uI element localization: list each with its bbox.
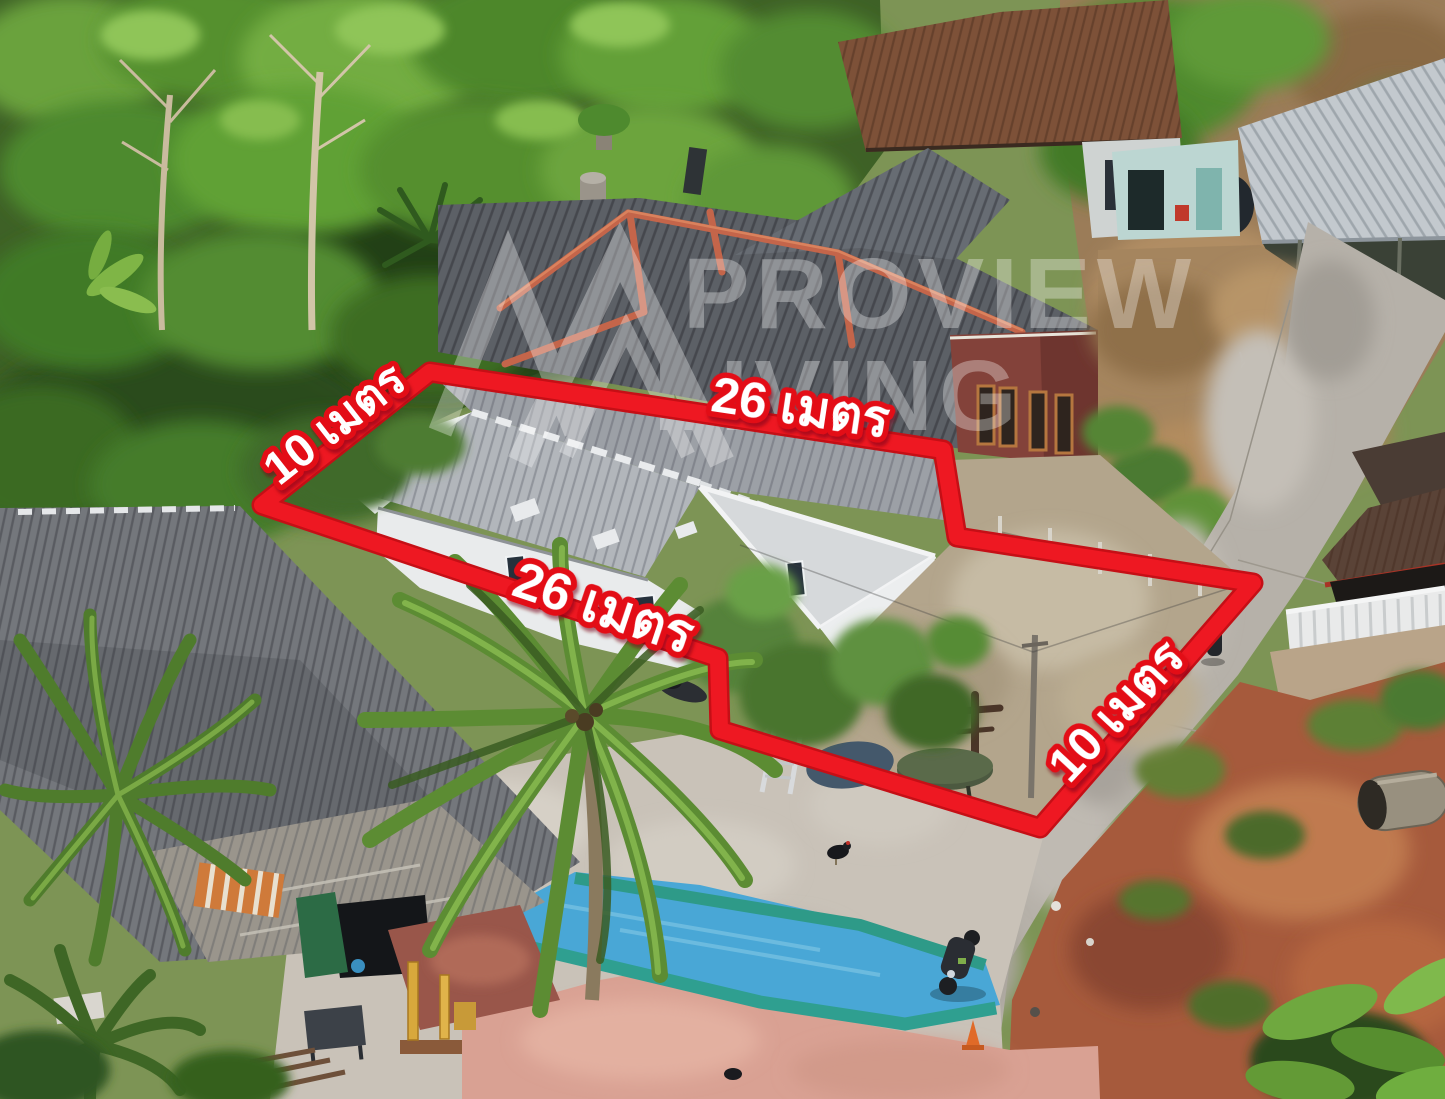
chicken <box>724 1068 742 1080</box>
watermark-line1: PROVIEW <box>683 238 1197 350</box>
screenshot: PROVIEW LIVING 10 เมตร 26 เมตร 26 เมตร 1… <box>0 0 1445 1099</box>
watering-can <box>351 959 365 973</box>
aerial-photo: PROVIEW LIVING 10 เมตร 26 เมตร 26 เมตร 1… <box>0 0 1445 1099</box>
